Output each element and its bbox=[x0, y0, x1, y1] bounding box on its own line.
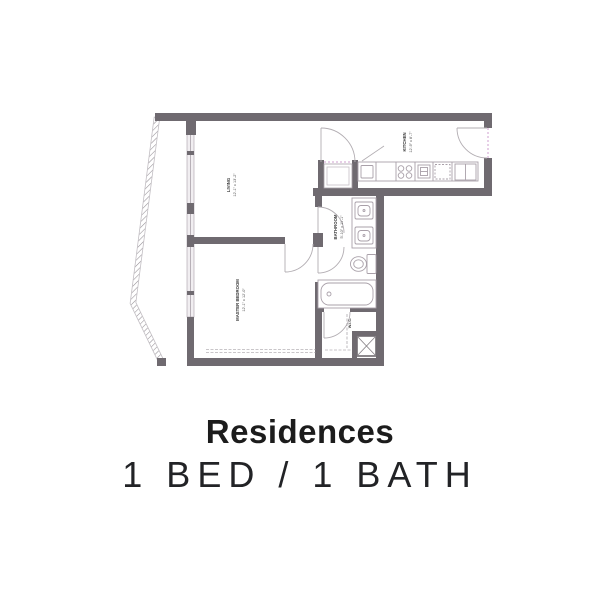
master-bedroom-label: MASTER BEDROOM bbox=[235, 279, 240, 321]
dashed-lines bbox=[206, 314, 351, 353]
residence-title: Residences bbox=[0, 414, 600, 450]
kitchen-fixtures bbox=[358, 162, 478, 181]
shaft-x-box bbox=[357, 336, 376, 356]
caption: Residences 1 BED / 1 BATH bbox=[0, 414, 600, 495]
kitchen-dims: 12'-9" x 8'-7" bbox=[409, 131, 413, 153]
west-windows bbox=[187, 133, 194, 317]
master-bedroom-dims: 12'-1" x 12'-0" bbox=[242, 288, 246, 312]
kitchen-label: KITCHEN bbox=[402, 132, 407, 151]
double-vanity bbox=[352, 198, 376, 248]
bathroom-fixtures bbox=[318, 198, 376, 308]
walls bbox=[155, 113, 492, 366]
kitchen-sink bbox=[361, 166, 373, 179]
bed-bath-subtitle: 1 BED / 1 BATH bbox=[0, 455, 600, 495]
bathroom-label: BATHROOM bbox=[333, 214, 338, 239]
bathtub bbox=[318, 280, 376, 308]
toilet bbox=[351, 255, 377, 274]
living-room-dims: 12'-1" x 13'-2" bbox=[233, 173, 237, 197]
living-room-label: LIVING bbox=[226, 177, 231, 192]
balcony-hatch-wall bbox=[133, 117, 166, 366]
floor-plan: LIVING 12'-1" x 13'-2" MASTER BEDROOM 12… bbox=[0, 0, 600, 600]
page: LIVING 12'-1" x 13'-2" MASTER BEDROOM 12… bbox=[0, 0, 600, 600]
dishwasher bbox=[435, 165, 450, 180]
oven bbox=[418, 165, 430, 178]
entry-closet bbox=[324, 164, 352, 188]
wic-label: W.I.C. bbox=[347, 318, 352, 329]
refrigerator bbox=[455, 164, 476, 180]
bathroom-dims: 5'-10" x 11'-1" bbox=[340, 215, 344, 239]
